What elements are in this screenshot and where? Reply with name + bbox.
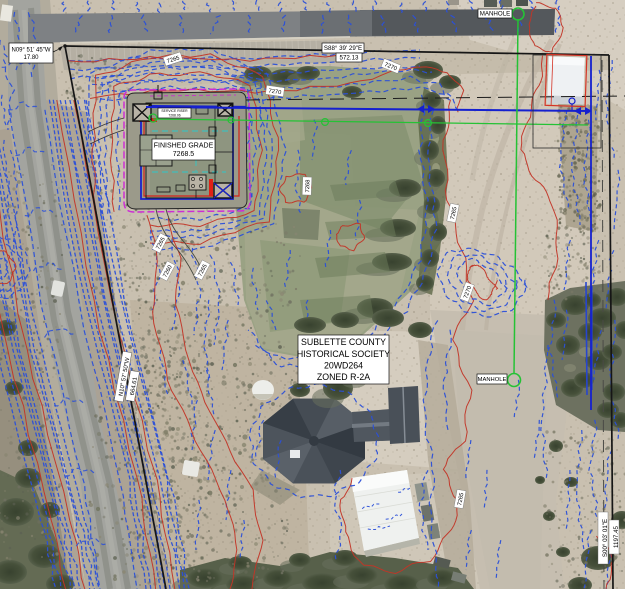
svg-text:7268: 7268 (305, 179, 311, 192)
svg-text:7268.06: 7268.06 (168, 113, 180, 117)
svg-text:MANHOLE: MANHOLE (478, 377, 507, 383)
svg-text:20WD264: 20WD264 (324, 360, 363, 370)
svg-text:FINISHED GRADE: FINISHED GRADE (154, 143, 214, 150)
svg-text:ZONED R-2A: ZONED R-2A (317, 372, 370, 382)
svg-text:S00° 03' 01"E: S00° 03' 01"E (602, 519, 609, 557)
svg-text:MANHOLE: MANHOLE (480, 11, 511, 18)
svg-text:17.80: 17.80 (23, 55, 39, 61)
svg-text:572.13: 572.13 (340, 55, 359, 62)
svg-text:S88° 39' 29"E: S88° 39' 29"E (324, 45, 362, 52)
svg-text:SUBLETTE COUNTY: SUBLETTE COUNTY (301, 337, 386, 347)
svg-text:1197.45: 1197.45 (613, 525, 620, 547)
svg-text:N09° 51' 45"W: N09° 51' 45"W (11, 47, 50, 53)
svg-text:HISTORICAL SOCIETY: HISTORICAL SOCIETY (297, 349, 390, 359)
svg-text:7268.5: 7268.5 (173, 151, 195, 158)
